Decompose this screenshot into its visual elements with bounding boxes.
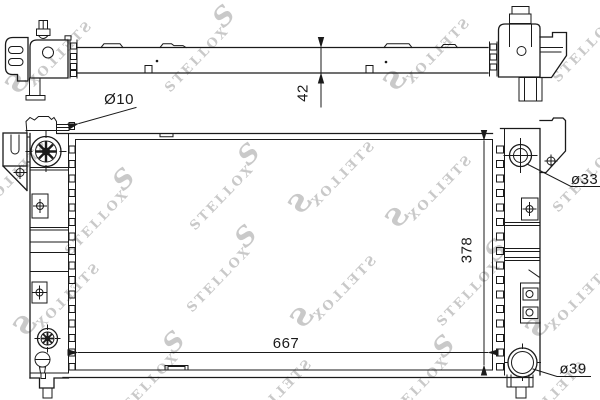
svg-text:STELLOX: STELLOX [382, 353, 452, 400]
brand-watermark: STELLOXS [99, 326, 193, 400]
brand-watermark: STELLOXS [49, 163, 143, 259]
lower-right-mount [507, 375, 533, 398]
svg-text:STELLOX: STELLOX [244, 357, 314, 400]
svg-text:STELLOX: STELLOX [187, 161, 257, 233]
top-view: 42 [6, 7, 567, 108]
left-fitting-upper [32, 194, 48, 218]
inlet-port [504, 139, 537, 173]
front-view: 378 667 Ø10 ø33 ø39 [3, 91, 600, 398]
svg-text:STELLOX: STELLOX [112, 349, 182, 400]
brand-watermark: STELLOXS [220, 345, 314, 400]
left-fitting-lower [32, 282, 47, 303]
callout-outlet-port: ø39 [533, 361, 591, 378]
svg-text:STELLOX: STELLOX [404, 153, 474, 225]
brand-watermark: STELLOXS [520, 251, 600, 347]
svg-text:STELLOX: STELLOX [434, 257, 504, 329]
svg-text:STELLOX: STELLOX [184, 243, 254, 315]
brand-watermark: STELLOXS [537, 120, 600, 216]
brand-watermark: STELLOXS [285, 241, 379, 337]
drain-petcock [35, 352, 50, 379]
drawing-canvas: STELLOXS STELLOXS STELLOXS STELLOXS STEL… [0, 0, 600, 400]
svg-text:STELLOX: STELLOX [307, 139, 377, 211]
overflow-nipple [57, 123, 75, 131]
brand-watermark: STELLOXS [378, 4, 472, 100]
brand-watermark: STELLOXS [537, 0, 600, 86]
radiator-technical-drawing: STELLOXS STELLOXS STELLOXS STELLOXS STEL… [0, 0, 600, 400]
right-tank [497, 118, 566, 398]
filler-neck [26, 117, 57, 134]
svg-text:S: S [283, 187, 318, 221]
svg-text:S: S [595, 120, 600, 154]
dim-label-42: 42 [295, 84, 312, 102]
svg-text:S: S [107, 163, 142, 197]
svg-text:STELLOX: STELLOX [162, 23, 232, 95]
svg-text:STELLOX: STELLOX [32, 261, 102, 333]
svg-text:STELLOX: STELLOX [402, 16, 472, 88]
svg-text:STELLOX: STELLOX [309, 253, 379, 325]
brand-watermark: STELLOXS [283, 127, 377, 223]
brand-watermark: STELLOXS [8, 249, 102, 345]
svg-text:S: S [378, 64, 413, 98]
svg-text:S: S [285, 301, 320, 335]
svg-text:S: S [427, 330, 462, 364]
svg-text:S: S [380, 201, 415, 235]
dim-label-378: 378 [459, 237, 476, 264]
upper-right-mount-bracket [540, 118, 566, 173]
brand-watermark: STELLOXS [380, 141, 474, 237]
svg-text:STELLOX: STELLOX [24, 19, 94, 91]
dim-core-width: 667 [79, 335, 488, 353]
dim-label-o10: Ø10 [104, 91, 134, 108]
dim-label-667: 667 [273, 335, 300, 352]
outlet-port [505, 344, 541, 381]
svg-text:STELLOX: STELLOX [550, 13, 600, 85]
right-fitting [522, 198, 539, 220]
svg-text:S: S [207, 0, 242, 34]
svg-text:S: S [229, 220, 264, 254]
left-tank [3, 117, 75, 399]
dim-top-view-depth: 42 [295, 48, 322, 107]
brand-watermark: STELLOXS [174, 138, 268, 234]
brand-watermark: STELLOXS [171, 220, 265, 316]
callout-overflow-nipple: Ø10 [79, 91, 136, 124]
svg-text:S: S [595, 0, 600, 24]
brand-watermark: STELLOXS [369, 330, 463, 400]
svg-text:S: S [232, 138, 267, 172]
dim-label-o33: ø33 [571, 171, 598, 188]
watermark-layer: STELLOXS STELLOXS STELLOXS STELLOXS STEL… [0, 0, 600, 400]
top-view-right-end [490, 7, 567, 102]
svg-text:S: S [157, 326, 192, 360]
svg-text:STELLOX: STELLOX [544, 263, 600, 335]
dim-label-o39: ø39 [559, 361, 586, 378]
